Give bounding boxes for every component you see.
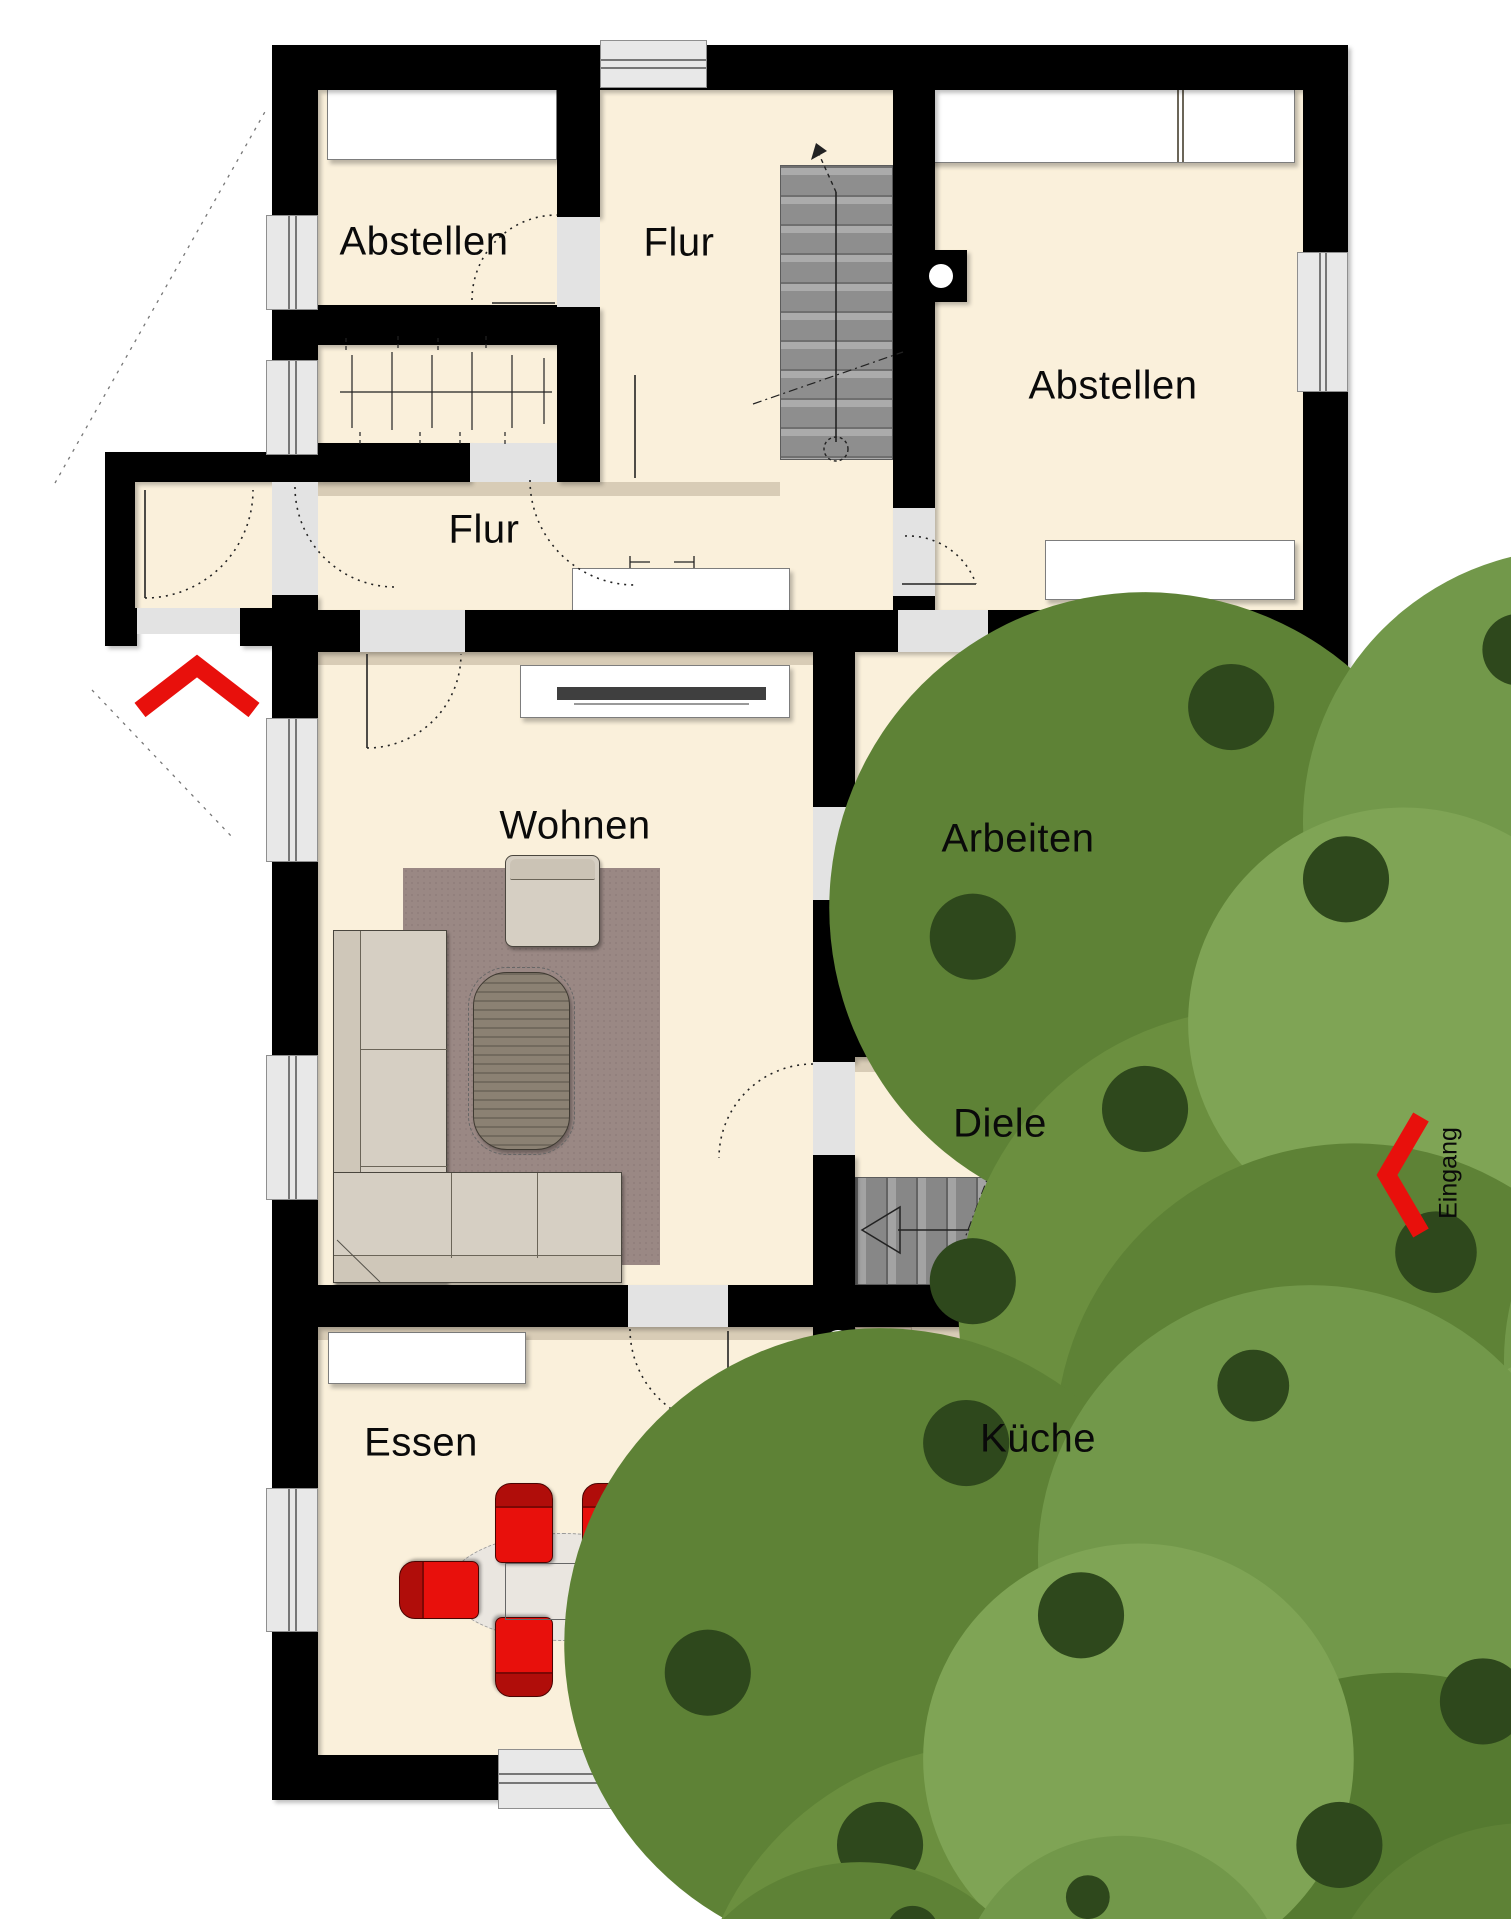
armchair-backrest bbox=[510, 859, 595, 880]
room-label-essen: Essen bbox=[364, 1421, 478, 1466]
wall bbox=[318, 610, 1303, 652]
hall-sideboard bbox=[572, 568, 790, 612]
wall bbox=[557, 307, 600, 482]
floor-edge-strip bbox=[855, 1057, 1245, 1072]
wall bbox=[557, 90, 600, 217]
cooktop bbox=[828, 1506, 912, 1598]
dining-chair bbox=[648, 1561, 728, 1619]
burner-icon bbox=[872, 1552, 898, 1578]
wall bbox=[272, 595, 318, 608]
sink-drain bbox=[1066, 1747, 1072, 1753]
door-opening bbox=[813, 1062, 855, 1155]
sofa-cushion-divider bbox=[451, 1173, 452, 1258]
room-label-diele: Diele bbox=[953, 1102, 1047, 1147]
plant-icon bbox=[667, 1836, 1351, 1919]
floor-edge-strip bbox=[912, 1327, 1303, 1341]
tv-icon bbox=[557, 687, 766, 700]
office-sideboard bbox=[858, 945, 1300, 1013]
sink-drain bbox=[1131, 1747, 1137, 1753]
staircase-upper bbox=[780, 165, 893, 460]
wall bbox=[272, 1755, 1348, 1800]
tv-stand bbox=[574, 703, 749, 705]
tv-lowboard bbox=[520, 665, 790, 718]
cabinet bbox=[1045, 540, 1295, 600]
door-opening bbox=[470, 443, 557, 482]
door-opening bbox=[898, 610, 988, 652]
cabinet-divider bbox=[1182, 89, 1184, 162]
dining-table-top bbox=[505, 1563, 620, 1620]
sofa-cushion-divider bbox=[361, 1049, 448, 1050]
door-opening bbox=[1133, 1285, 1233, 1327]
wall bbox=[813, 1015, 1303, 1057]
sofa-cushion-divider bbox=[361, 1166, 448, 1167]
dining-chair bbox=[495, 1483, 553, 1563]
room-label-flur-upper: Flur bbox=[644, 221, 715, 266]
window bbox=[266, 360, 318, 455]
window bbox=[1297, 772, 1348, 912]
entrance-arrow-icon bbox=[1387, 1117, 1421, 1233]
window bbox=[266, 1488, 318, 1632]
door-opening bbox=[813, 807, 855, 900]
desk-frame-leg bbox=[1119, 676, 1133, 768]
wall bbox=[272, 45, 1348, 90]
room-label-wohnen: Wohnen bbox=[499, 804, 650, 849]
cabinet bbox=[327, 85, 557, 160]
room-label-flur-main: Flur bbox=[449, 508, 520, 553]
sideboard-divider bbox=[1076, 946, 1078, 1012]
chimney-flue-circle bbox=[929, 264, 953, 288]
wall-flue-circle bbox=[826, 1374, 850, 1398]
window bbox=[266, 718, 318, 862]
sofa-bottom-section bbox=[333, 1172, 622, 1283]
wall bbox=[318, 443, 470, 482]
dining-chair bbox=[582, 1617, 640, 1697]
room-label-kueche: Küche bbox=[980, 1417, 1096, 1462]
staircase-hall bbox=[855, 1177, 1097, 1285]
entrance-sill bbox=[137, 608, 240, 634]
entrance-door-opening bbox=[1297, 1125, 1348, 1262]
door-opening bbox=[628, 1285, 728, 1327]
wall bbox=[105, 452, 272, 482]
coffee-table bbox=[473, 972, 570, 1150]
wall bbox=[105, 482, 135, 608]
entrance-label: Eingang bbox=[1435, 1127, 1464, 1219]
mouse-icon bbox=[1224, 731, 1239, 753]
wall bbox=[318, 305, 557, 345]
cooktop-surface bbox=[836, 1514, 904, 1590]
window bbox=[266, 1055, 318, 1200]
wall-flue-circle bbox=[826, 1330, 850, 1354]
plant-icon bbox=[1319, 1795, 1511, 1919]
wall bbox=[813, 652, 855, 807]
door-opening bbox=[272, 482, 318, 595]
burner-icon bbox=[843, 1556, 863, 1576]
window bbox=[1297, 1462, 1348, 1602]
wall bbox=[240, 608, 272, 646]
desk-frame-leg bbox=[1246, 676, 1260, 768]
entrance-arrow-icon bbox=[140, 666, 254, 710]
door-opening bbox=[557, 217, 600, 307]
dining-chair bbox=[399, 1561, 479, 1619]
floor-vestibule bbox=[135, 482, 272, 608]
cabinet-divider bbox=[1177, 89, 1179, 162]
burner-icon bbox=[876, 1520, 896, 1540]
floor-edge-strip bbox=[318, 652, 813, 665]
window bbox=[498, 1749, 625, 1809]
dining-chair bbox=[495, 1617, 553, 1697]
kitchen-sink bbox=[1030, 1714, 1175, 1788]
window bbox=[266, 215, 318, 310]
kitchen-table bbox=[1128, 1472, 1302, 1568]
burner-icon bbox=[844, 1522, 868, 1546]
window bbox=[1297, 252, 1348, 392]
door-opening bbox=[360, 610, 465, 652]
door-opening bbox=[893, 508, 935, 596]
dining-sideboard bbox=[328, 1332, 526, 1384]
sofa-cushion-divider bbox=[537, 1173, 538, 1258]
window bbox=[600, 40, 707, 88]
wall bbox=[813, 1155, 855, 1285]
room-label-abstellen-2: Abstellen bbox=[1028, 364, 1197, 409]
room-label-abstellen-1: Abstellen bbox=[339, 220, 508, 265]
dining-chair bbox=[582, 1483, 640, 1563]
floor-plan: Abstellen Flur Abstellen Flur Wohnen Arb… bbox=[0, 0, 1511, 1919]
armchair bbox=[505, 855, 600, 947]
wall bbox=[813, 900, 855, 1015]
floor-edge-strip bbox=[318, 482, 780, 496]
cabinet bbox=[905, 88, 1295, 163]
wall bbox=[105, 608, 137, 646]
monitor-icon bbox=[1141, 688, 1243, 699]
sofa-backrest bbox=[334, 1255, 621, 1282]
room-label-arbeiten: Arbeiten bbox=[942, 817, 1095, 862]
